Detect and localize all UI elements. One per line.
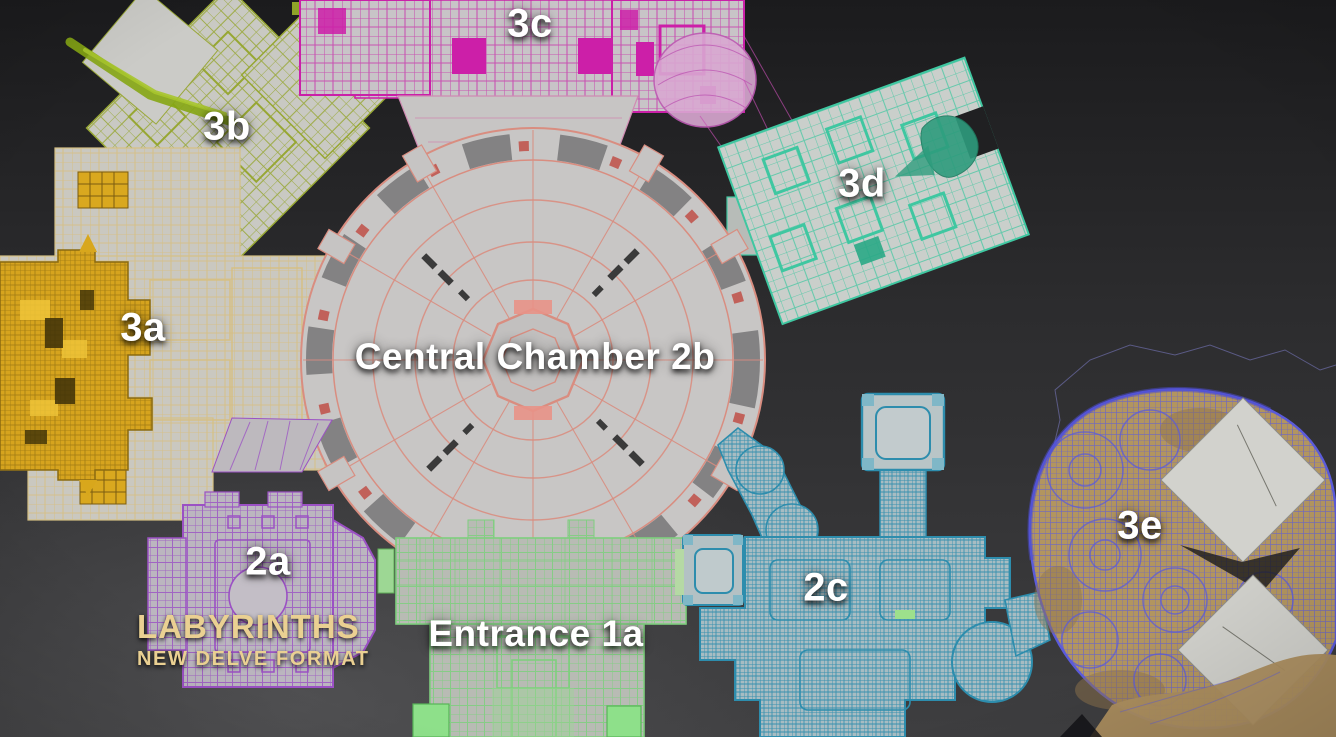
- zone-label-3c: 3c: [507, 2, 553, 47]
- entrance-pillar-left: [413, 704, 449, 737]
- branding-title: LABYRINTHS: [137, 608, 360, 646]
- entrance-pillar-right: [607, 706, 641, 737]
- zone-label-3a: 3a: [120, 306, 166, 351]
- zone-2c-wireframe: [675, 394, 1050, 737]
- branding-subtitle: NEW DELVE FORMAT: [137, 648, 370, 671]
- zone-label-3b: 3b: [203, 105, 251, 150]
- map-viewport: 3b 3c 3d 3a Central Chamber 2b 2a Entran…: [0, 0, 1336, 737]
- zone-label-3d: 3d: [838, 162, 886, 207]
- zone-label-entrance: Entrance 1a: [428, 613, 643, 655]
- 2a-green-connector: [378, 549, 394, 593]
- zone-label-3e: 3e: [1117, 504, 1163, 549]
- zone-label-2a: 2a: [245, 540, 291, 585]
- 2c-green-connector: [675, 549, 684, 595]
- zone-label-central-chamber: Central Chamber 2b: [355, 336, 716, 378]
- gold-grate-top: [78, 172, 128, 208]
- zone-label-2c: 2c: [803, 566, 849, 611]
- zone-3e-wireframe: [1030, 345, 1336, 737]
